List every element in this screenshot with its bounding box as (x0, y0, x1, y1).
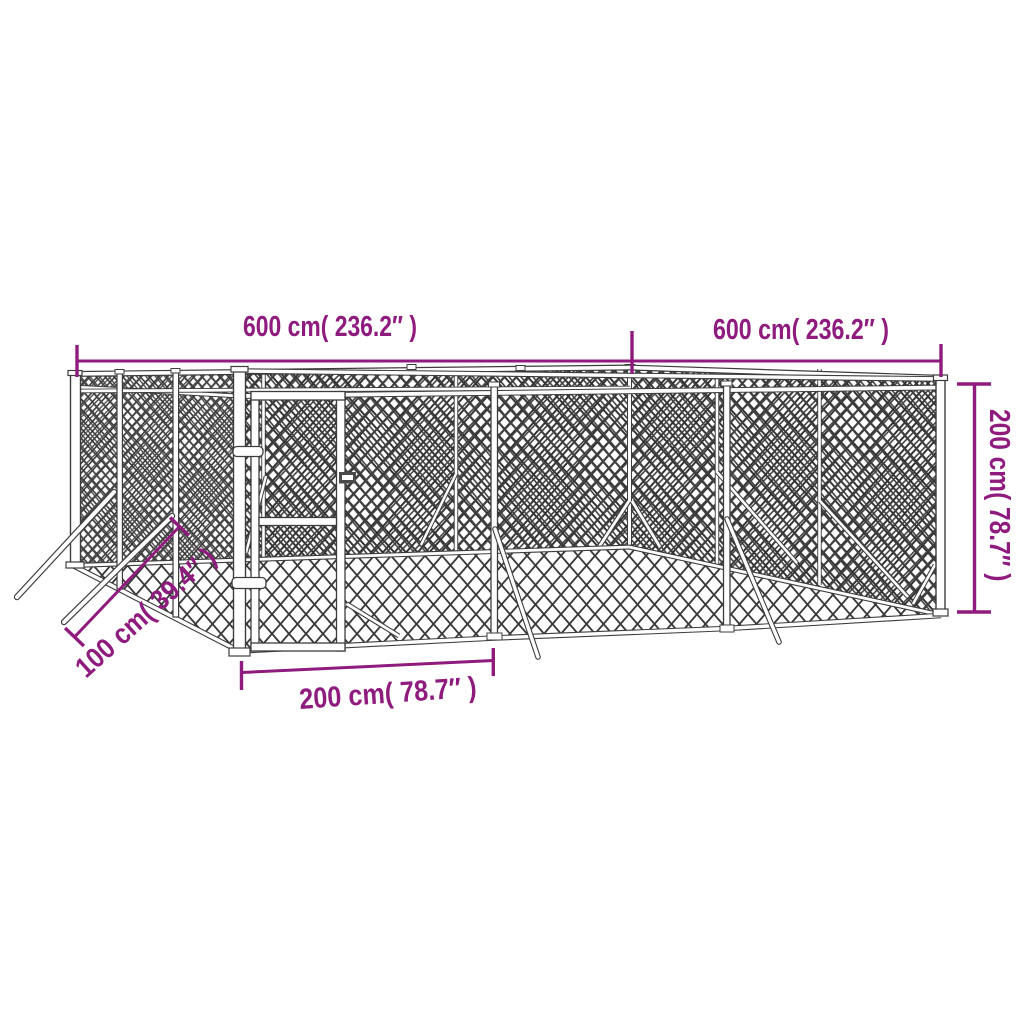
svg-text:600 cm( 236.2″ ): 600 cm( 236.2″ ) (243, 311, 417, 343)
svg-text:200 cm( 78.7″ ): 200 cm( 78.7″ ) (984, 409, 1016, 581)
svg-text:600 cm( 236.2″ ): 600 cm( 236.2″ ) (713, 314, 889, 346)
